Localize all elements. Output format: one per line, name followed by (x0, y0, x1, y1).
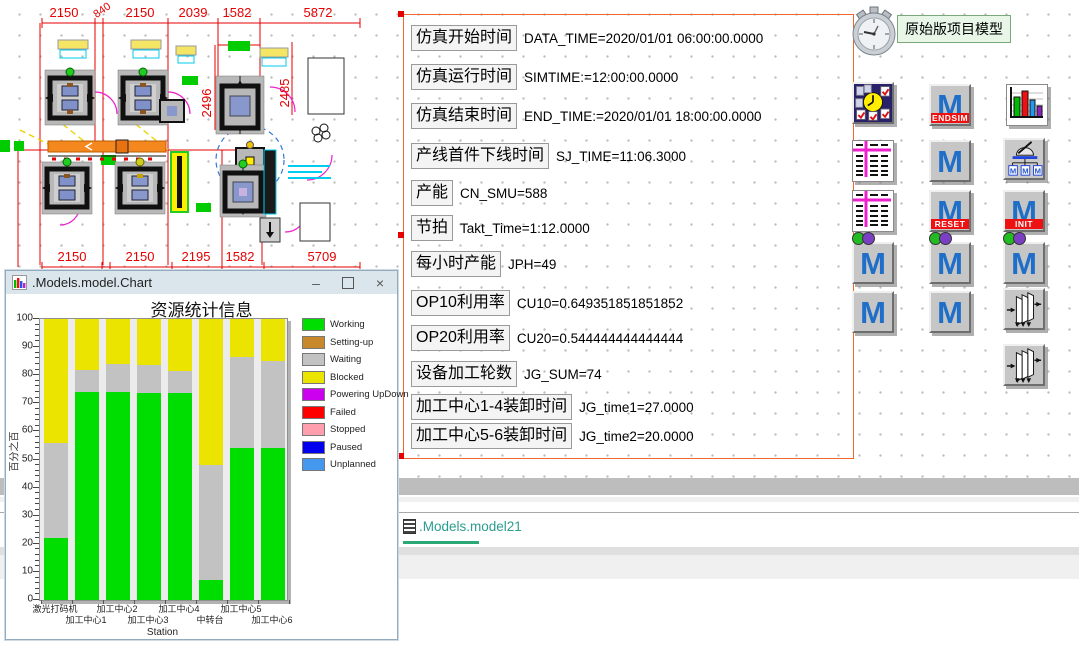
bar-加工中心1 (75, 319, 99, 600)
y-tick-label: 100 (7, 313, 33, 324)
legend-item: Failed (302, 406, 409, 419)
legend-item: Unplanned (302, 458, 409, 471)
variable-value-text: DATA_TIME=2020/01/01 06:00:00.0000 (524, 31, 763, 46)
info-row: 产能CN_SMU=588 (411, 178, 547, 208)
method-m-glyph: M (860, 248, 886, 279)
x-tick-mark (289, 600, 290, 604)
info-row: 仿真开始时间DATA_TIME=2020/01/01 06:00:00.0000 (411, 23, 763, 53)
method-badge-label: RESET (931, 219, 969, 229)
variable-label-box[interactable]: 每小时产能 (411, 251, 501, 277)
variable-value-text: JG_time2=20.0000 (579, 429, 693, 444)
method-init-button[interactable]: MINIT (1003, 190, 1045, 232)
info-row: 加工中心1-4装卸时间JG_time1=27.0000 (411, 392, 694, 422)
info-row: 产线首件下线时间SJ_TIME=11:06.3000 (411, 141, 686, 171)
svg-text:M: M (1022, 166, 1028, 175)
method-m-glyph: M (1011, 248, 1037, 279)
y-minor-tick (35, 560, 39, 561)
variable-label-box[interactable]: OP20利用率 (411, 325, 510, 351)
method-button-body: MRESET (929, 190, 971, 232)
variable-value-text: Takt_Time=1:12.0000 (460, 221, 590, 236)
chart-content: 资源统计信息 百分之百 0102030405060708090100 激光打码机… (6, 294, 397, 638)
y-tick-label: 40 (7, 481, 33, 492)
method-reset-button[interactable]: MRESET (929, 190, 971, 232)
dim-label-bottom-3: 2195 (182, 249, 211, 264)
y-tick-mark (33, 487, 39, 488)
variable-value-text: END_TIME:=2020/01/01 18:00:00.0000 (524, 109, 762, 124)
variable-label-box[interactable]: 设备加工轮数 (411, 361, 517, 387)
chart-plot-area (39, 318, 288, 601)
y-tick-mark (33, 402, 39, 403)
svg-text:M: M (1010, 166, 1016, 175)
cad-accessory-boxes (58, 40, 288, 66)
info-row: 仿真运行时间SIMTIME:=12:00:00.0000 (411, 62, 678, 92)
bar-segment-working (199, 580, 223, 600)
event-controller-stopwatch-icon[interactable] (851, 6, 897, 63)
y-tick-mark (33, 459, 39, 460)
info-row: OP20利用率CU20=0.544444444444444 (411, 323, 683, 353)
bar-segment-blocked (44, 319, 68, 443)
bar-segment-working (75, 392, 99, 600)
method-badge-label: ENDSIM (931, 113, 969, 123)
bar-segment-working (261, 448, 285, 600)
variable-value-text: CN_SMU=588 (460, 186, 547, 201)
legend-swatch (302, 388, 325, 401)
variable-label-box[interactable]: 加工中心1-4装卸时间 (411, 394, 572, 420)
chart-window-icon (12, 275, 27, 290)
mmm-icon-body: MMM (1003, 138, 1045, 180)
dim-label-top-5: 1582 (223, 5, 252, 20)
minimize-button[interactable]: – (301, 271, 331, 294)
info-row: 节拍Takt_Time=1:12.0000 (411, 213, 590, 243)
info-row: OP10利用率CU10=0.649351851851852 (411, 288, 683, 318)
y-minor-tick (35, 503, 39, 504)
y-minor-tick (35, 442, 39, 443)
y-minor-tick (35, 588, 39, 589)
bar-segment-blocked (261, 319, 285, 361)
y-minor-tick (35, 565, 39, 566)
y-tick-mark (33, 543, 39, 544)
y-minor-tick (35, 329, 39, 330)
y-tick-label: 90 (7, 341, 33, 352)
y-minor-tick (35, 324, 39, 325)
info-row: 每小时产能JPH=49 (411, 249, 556, 279)
method-m-glyph: M (937, 297, 963, 328)
purple-dot-icon (862, 232, 875, 245)
y-tick-mark (33, 599, 39, 600)
y-minor-tick (35, 357, 39, 358)
bar-segment-working (230, 448, 254, 600)
cad-machine-1 (45, 68, 95, 125)
x-tick-mark (227, 600, 228, 604)
flow-control-icon-2[interactable] (1003, 344, 1045, 386)
x-tick-mark (72, 600, 73, 604)
method-button-2[interactable]: M (852, 291, 894, 333)
y-minor-tick (35, 520, 39, 521)
y-tick-mark (33, 515, 39, 516)
x-tick-mark (134, 600, 135, 604)
cad-door-1 (308, 58, 344, 114)
bar-加工中心5 (230, 319, 254, 600)
table-file-icon-2[interactable] (852, 190, 894, 232)
bar-加工中心3 (137, 319, 161, 600)
y-minor-tick (35, 582, 39, 583)
cad-fan-icon (312, 124, 330, 142)
y-minor-tick (35, 340, 39, 341)
legend-label: Waiting (330, 354, 361, 365)
legend-item: Blocked (302, 371, 409, 384)
y-minor-tick (35, 453, 39, 454)
y-minor-tick (35, 481, 39, 482)
variable-value-text: SIMTIME:=12:00:00.0000 (524, 70, 678, 85)
bar-segment-blocked (137, 319, 161, 365)
y-minor-tick (35, 408, 39, 409)
info-row: 设备加工轮数JG_SUM=74 (411, 359, 602, 389)
y-tick-label: 20 (7, 537, 33, 548)
legend-label: Setting-up (330, 337, 373, 348)
bar-segment-waiting (199, 465, 223, 580)
y-tick-mark (33, 430, 39, 431)
legend-label: Stopped (330, 424, 365, 435)
dim-label-bottom-5: 5709 (308, 249, 337, 264)
legend-item: Powering UpDown (302, 388, 409, 401)
y-tick-label: 70 (7, 397, 33, 408)
y-minor-tick (35, 414, 39, 415)
maximize-icon (342, 277, 354, 289)
y-minor-tick (35, 352, 39, 353)
chart-icon-body (1006, 84, 1048, 126)
method-dots-button-2[interactable]: M (929, 242, 971, 284)
legend-label: Unplanned (330, 459, 376, 470)
bar-segment-working (168, 393, 192, 600)
dim-label-top-1: 2150 (50, 5, 79, 20)
variable-value-text: CU10=0.649351851851852 (517, 296, 683, 311)
bar-加工中心6 (261, 319, 285, 600)
bar-segment-waiting (106, 364, 130, 392)
y-tick-mark (33, 346, 39, 347)
method-dots-button-1[interactable]: M (852, 242, 894, 284)
y-tick-mark (33, 571, 39, 572)
legend-swatch (302, 458, 325, 471)
y-minor-tick (35, 593, 39, 594)
legend-label: Paused (330, 442, 362, 453)
y-axis-title: 百分之百 (6, 432, 21, 472)
cad-small-machine-1 (160, 100, 184, 122)
chart-tool-icon[interactable] (1006, 84, 1048, 126)
variable-label-box[interactable]: 仿真结束时间 (411, 103, 517, 129)
y-minor-tick (35, 385, 39, 386)
cad-machine-5 (115, 158, 165, 214)
variable-value-text: CU20=0.544444444444444 (517, 331, 683, 346)
dim-label-bottom-4: 1582 (226, 249, 255, 264)
y-minor-tick (35, 447, 39, 448)
method-endsim-button[interactable]: MENDSIM (929, 84, 971, 126)
legend-label: Failed (330, 407, 356, 418)
selection-handle[interactable] (398, 232, 404, 238)
bar-segment-working (137, 393, 161, 600)
y-minor-tick (35, 554, 39, 555)
variable-value-text: JPH=49 (508, 257, 556, 272)
legend-label: Working (330, 319, 365, 330)
variable-value-text: JG_SUM=74 (524, 367, 602, 382)
y-minor-tick (35, 363, 39, 364)
y-minor-tick (35, 537, 39, 538)
legend-swatch (302, 371, 325, 384)
plant-simulation-app: 2150 840 2150 2039 1582 5872 2150 2150 2… (0, 0, 1079, 647)
method-badge-label: INIT (1005, 219, 1043, 229)
method-button-body: M (852, 242, 894, 284)
method-m-glyph: M (937, 248, 963, 279)
bar-中转台 (199, 319, 223, 600)
bar-segment-blocked (106, 319, 130, 364)
legend-item: Setting-up (302, 336, 409, 349)
y-minor-tick (35, 380, 39, 381)
x-tick-mark (41, 600, 42, 604)
bar-segment-blocked (168, 319, 192, 371)
method-dots-button-3[interactable]: M (1003, 242, 1045, 284)
y-tick-label: 30 (7, 509, 33, 520)
cad-conveyor (48, 140, 166, 159)
legend-swatch (302, 441, 325, 454)
flow-icon-body (1003, 288, 1045, 330)
active-tab-underline (403, 541, 479, 544)
table-icon-body (852, 140, 894, 182)
dim-label-side-2: 2485 (277, 79, 292, 108)
y-tick-label: 80 (7, 369, 33, 380)
dim-label-top-4: 2039 (179, 5, 208, 20)
bar-加工中心2 (106, 319, 130, 600)
variable-label-box[interactable]: 仿真运行时间 (411, 64, 517, 90)
close-button[interactable]: × (365, 271, 395, 294)
purple-dot-icon (939, 232, 952, 245)
y-minor-tick (35, 335, 39, 336)
tab-label: .Models.model21 (419, 519, 522, 534)
variable-label-box[interactable]: 加工中心5-6装卸时间 (411, 423, 572, 449)
variable-label-box[interactable]: OP10利用率 (411, 290, 510, 316)
bar-segment-working (106, 392, 130, 600)
legend-item: Waiting (302, 353, 409, 366)
frame-icon (403, 519, 416, 534)
legend-item: Working (302, 318, 409, 331)
chart-legend: WorkingSetting-upWaitingBlockedPowering … (302, 318, 409, 471)
legend-item: Paused (302, 441, 409, 454)
flow-icon-body (1003, 344, 1045, 386)
y-minor-tick (35, 397, 39, 398)
bar-segment-waiting (137, 365, 161, 393)
y-minor-tick (35, 532, 39, 533)
cad-machine-4 (42, 158, 92, 214)
cad-layout-drawing: 2150 840 2150 2039 1582 5872 2150 2150 2… (0, 0, 400, 270)
method-button-body: MENDSIM (929, 84, 971, 126)
cad-machine-6 (220, 160, 266, 217)
y-tick-label: 10 (7, 565, 33, 576)
y-tick-label: 50 (7, 453, 33, 464)
legend-swatch (302, 336, 325, 349)
chart-window[interactable]: .Models.model.Chart – × 资源统计信息 百分之百 0102… (5, 270, 398, 640)
cad-lift-station (171, 152, 188, 212)
y-minor-tick (35, 470, 39, 471)
y-minor-tick (35, 577, 39, 578)
x-tick-mark (165, 600, 166, 604)
chart-window-title: .Models.model.Chart (32, 275, 152, 290)
method-button-body: M (929, 140, 971, 182)
chart-window-titlebar[interactable]: .Models.model.Chart – × (6, 271, 397, 294)
method-m-glyph: M (937, 146, 963, 177)
info-row: 加工中心5-6装卸时间JG_time2=20.0000 (411, 421, 694, 451)
bar-激光打码机 (44, 319, 68, 600)
y-minor-tick (35, 526, 39, 527)
tab-models-model21[interactable]: .Models.model21 (403, 519, 522, 534)
variable-label-box[interactable]: 节拍 (411, 215, 453, 241)
dim-label-top-2: 840 (91, 0, 113, 20)
y-tick-mark (33, 374, 39, 375)
legend-swatch (302, 406, 325, 419)
maximize-button[interactable] (333, 271, 363, 294)
method-button-body: MINIT (1003, 190, 1045, 232)
method-button-1[interactable]: M (929, 140, 971, 182)
experiment-icon-body (852, 82, 894, 124)
info-row: 仿真结束时间END_TIME:=2020/01/01 18:00:00.0000 (411, 101, 762, 131)
dim-label-bottom-1: 2150 (58, 249, 87, 264)
x-axis-title: Station (39, 627, 286, 638)
method-button-body: M (929, 291, 971, 333)
method-button-body: M (852, 291, 894, 333)
y-minor-tick (35, 436, 39, 437)
variable-label-box[interactable]: 产能 (411, 180, 453, 206)
y-tick-label: 60 (7, 425, 33, 436)
y-minor-tick (35, 509, 39, 510)
variable-label-box[interactable]: 仿真开始时间 (411, 25, 517, 51)
bar-segment-waiting (230, 357, 254, 448)
bar-segment-waiting (261, 361, 285, 448)
cad-door-2 (300, 203, 330, 241)
x-tick-mark (103, 600, 104, 604)
y-tick-mark (33, 318, 39, 319)
y-minor-tick (35, 492, 39, 493)
variable-label-box[interactable]: 产线首件下线时间 (411, 143, 549, 169)
bar-segment-blocked (199, 319, 223, 465)
legend-swatch (302, 423, 325, 436)
bar-加工中心4 (168, 319, 192, 600)
y-minor-tick (35, 391, 39, 392)
info-panel-frame[interactable]: 仿真开始时间DATA_TIME=2020/01/01 06:00:00.0000… (403, 14, 854, 459)
bar-segment-waiting (75, 370, 99, 392)
dim-label-side-1: 2496 (199, 89, 214, 118)
y-minor-tick (35, 369, 39, 370)
method-m-glyph: M (860, 297, 886, 328)
purple-dot-icon (1013, 232, 1026, 245)
bar-segment-waiting (168, 371, 192, 393)
cad-machine-3 (216, 76, 264, 134)
dim-label-top-6: 5872 (304, 5, 333, 20)
bar-segment-working (44, 538, 68, 600)
dim-label-top-3: 2150 (126, 5, 155, 20)
experiment-tool-icon[interactable] (852, 82, 894, 124)
x-tick-mark (258, 600, 259, 604)
variable-value-text: JG_time1=27.0000 (579, 400, 693, 415)
bar-segment-waiting (44, 443, 68, 539)
model-name-label[interactable]: 原始版项目模型 (897, 15, 1011, 43)
y-minor-tick (35, 475, 39, 476)
y-minor-tick (35, 464, 39, 465)
y-minor-tick (35, 548, 39, 549)
y-minor-tick (35, 419, 39, 420)
y-minor-tick (35, 425, 39, 426)
variable-value-text: SJ_TIME=11:06.3000 (556, 149, 686, 164)
method-button-body: M (1003, 242, 1045, 284)
y-minor-tick (35, 498, 39, 499)
legend-label: Powering UpDown (330, 389, 409, 400)
table-file-icon-1[interactable] (852, 140, 894, 182)
table-icon-body (852, 190, 894, 232)
bar-segment-blocked (230, 319, 254, 357)
x-tick-label: 加工中心6 (240, 613, 304, 626)
legend-label: Blocked (330, 372, 364, 383)
method-button-body: M (929, 242, 971, 284)
dim-label-bottom-2: 2150 (126, 249, 155, 264)
svg-text:M: M (1035, 166, 1041, 175)
legend-item: Stopped (302, 423, 409, 436)
legend-swatch (302, 318, 325, 331)
legend-swatch (302, 353, 325, 366)
x-tick-mark (196, 600, 197, 604)
method-button-3[interactable]: M (929, 291, 971, 333)
method-hierarchy-icon[interactable]: MMM (1003, 138, 1045, 180)
bar-segment-blocked (75, 319, 99, 370)
selection-handle[interactable] (398, 11, 404, 17)
flow-control-icon-1[interactable] (1003, 288, 1045, 330)
